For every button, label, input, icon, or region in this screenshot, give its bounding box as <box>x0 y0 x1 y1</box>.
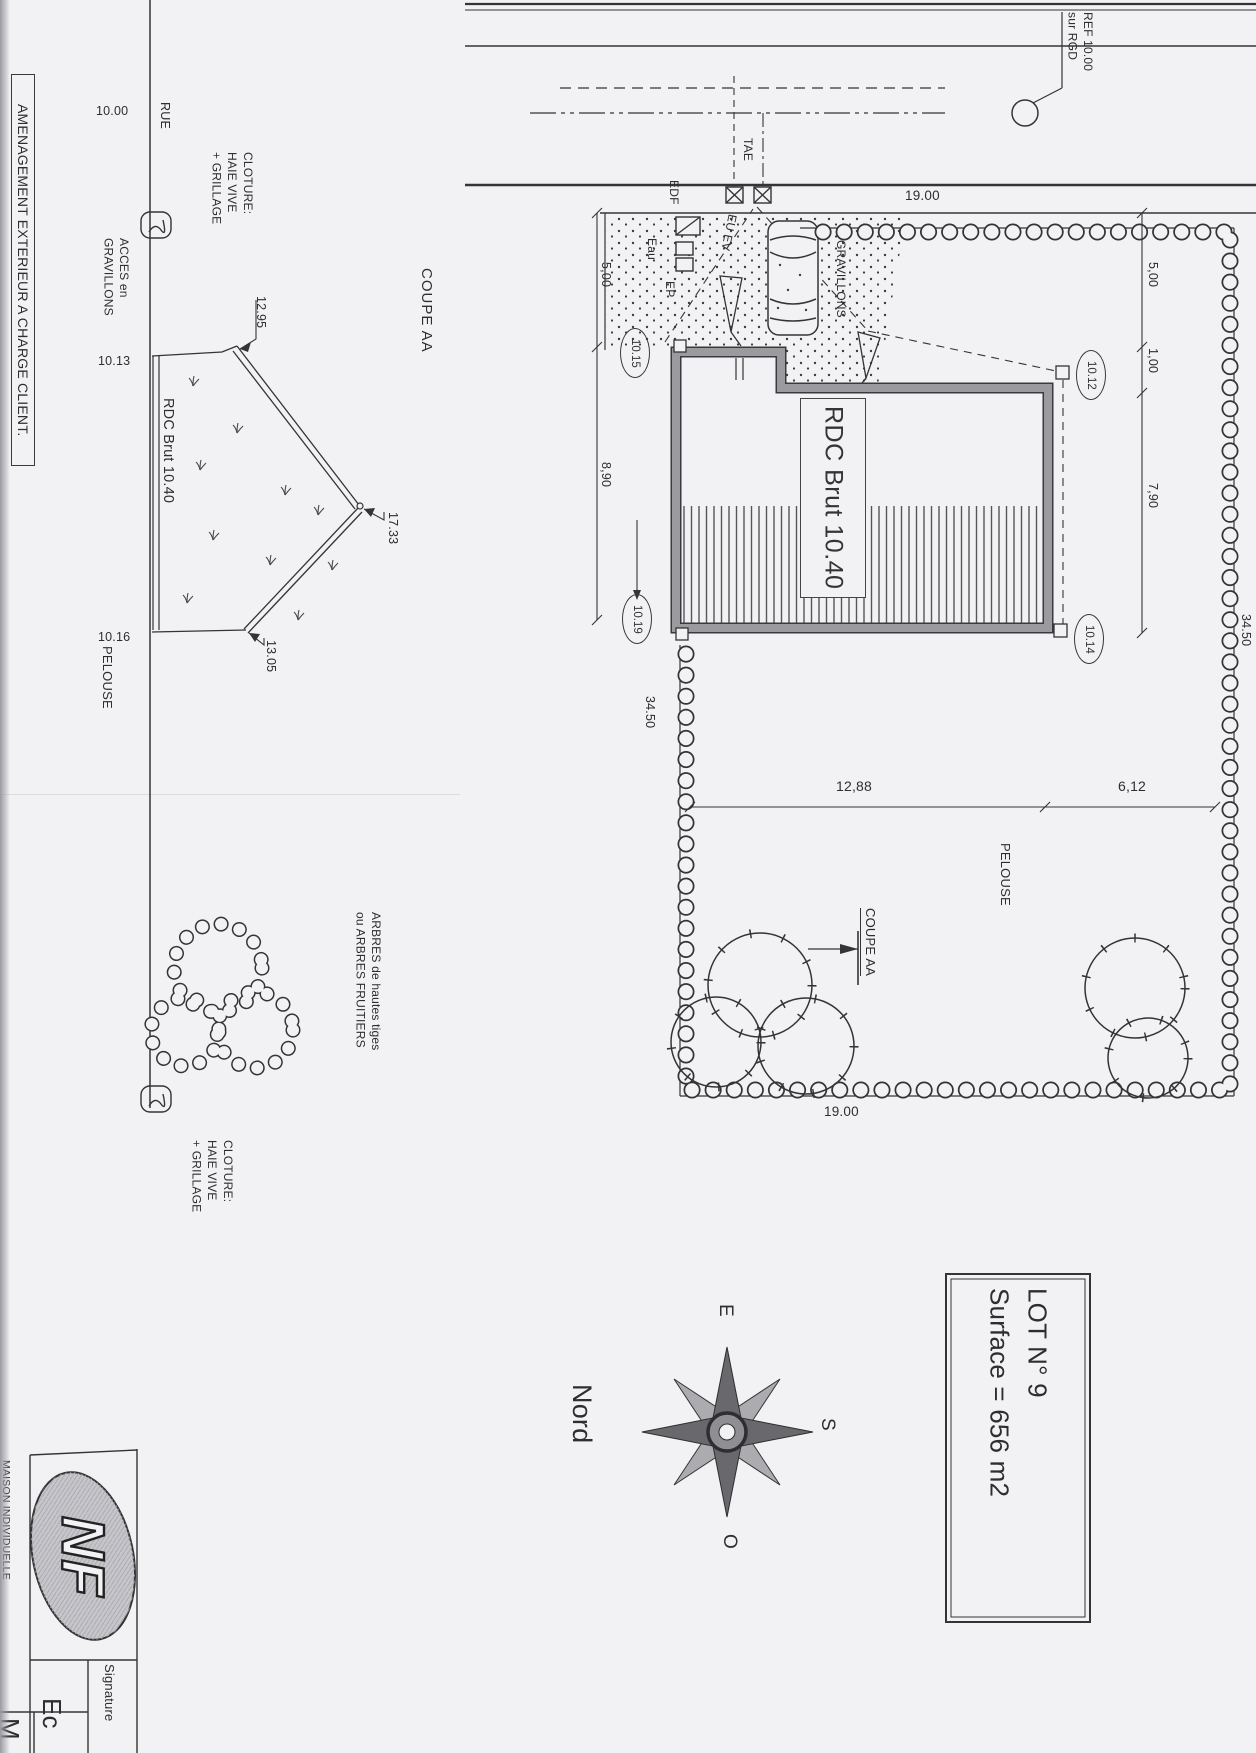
fruit-tree-symbol <box>671 933 1188 1098</box>
m-label: M <box>0 1718 25 1740</box>
trees-note: ARBRES de hautes tiges ou ARBRES FRUITIE… <box>352 912 383 1050</box>
dim-left-5-00: 5,00 <box>599 262 613 287</box>
dim-right-1-00: 1,00 <box>1146 348 1160 373</box>
street-lines <box>465 4 1256 213</box>
section-floor-label: RDC Brut 10.40 <box>160 398 176 503</box>
utility-tae: TAE <box>741 138 755 161</box>
street-ref-note: REF 10.00 sur RGD <box>1064 12 1095 71</box>
section-view <box>152 300 384 645</box>
hedge-clump-icon <box>141 212 171 1112</box>
tree-canopy-symbol <box>151 924 293 1068</box>
spot-10-19: 10.19 <box>622 594 652 644</box>
level-10-13: 10.13 <box>98 354 130 368</box>
signature-label: Signature <box>102 1664 117 1721</box>
building-floor-label: RDC Brut 10.40 <box>819 406 848 589</box>
utility-ep: EP <box>663 281 677 297</box>
plan-width-top: 19.00 <box>905 188 940 203</box>
compass-south-label: S <box>816 1418 838 1431</box>
depth-dim-right: 34.50 <box>1239 614 1253 646</box>
scanned-site-plan-sheet: NF AMENAGEMENT EXTERIEUR A CHARGE CLIENT… <box>0 0 1256 1753</box>
building-floor-label-box: RDC Brut 10.40 <box>800 398 866 598</box>
fence-note-bottom: CLOTURE: HAIE VIVE + GRILLAGE <box>188 1140 235 1212</box>
fence-note-top: CLOTURE: HAIE VIVE + GRILLAGE <box>208 152 255 224</box>
lot-info: LOT N° 9 Surface = 656 m2 <box>980 1288 1055 1497</box>
ref-leader <box>1012 12 1062 126</box>
spot-10-12: 10.12 <box>1076 350 1106 400</box>
utility-eau: Eau <box>645 238 659 260</box>
lot-number: LOT N° 9 <box>1018 1288 1056 1497</box>
garden-dim-6-12: 6,12 <box>1118 778 1146 794</box>
nf-certification-logo: NF <box>16 1462 149 1649</box>
spot-10-15: 10.15 <box>620 328 650 378</box>
compass-east-label: E <box>714 1304 736 1317</box>
lawn-label-left: PELOUSE <box>100 646 115 709</box>
car-plan-icon <box>768 221 818 335</box>
section-mark-label: COUPE AA <box>860 908 878 976</box>
compass-west-label: O <box>718 1534 740 1549</box>
section-title: COUPE AA <box>418 268 435 353</box>
ref-line1: REF 10.00 <box>1080 12 1096 71</box>
margin-note-amenagement: AMENAGEMENT EXTERIEUR A CHARGE CLIENT. <box>11 74 35 466</box>
ec-label: Ec <box>36 1698 67 1729</box>
access-note: ACCES en GRAVILLONS <box>100 238 131 316</box>
spot-10-14: 10.14 <box>1074 614 1104 664</box>
section-cut-mark <box>808 931 858 985</box>
gravel-label: GRAVILLONS <box>834 240 848 318</box>
utility-risers <box>734 76 763 187</box>
plan-width-bottom: 19.00 <box>824 1104 859 1119</box>
lot-surface: Surface = 656 m2 <box>980 1288 1018 1497</box>
svg-text:NF: NF <box>50 1516 117 1597</box>
utility-edf: EDF <box>667 180 681 205</box>
compass-rose-icon <box>642 1347 813 1517</box>
compass-north-label: Nord <box>566 1384 597 1443</box>
eave-dim-13-05: 13.05 <box>264 640 278 672</box>
lawn-label-plan: PELOUSE <box>998 843 1013 906</box>
eave-dim-12-95: 12.95 <box>254 296 268 328</box>
grass-tufts <box>183 376 338 620</box>
depth-dim-left: 34.50 <box>643 696 657 728</box>
dim-left-8-90: 8,90 <box>599 462 613 487</box>
level-10-16: 10.16 <box>98 630 130 644</box>
ref-line2: sur RGD <box>1064 12 1080 71</box>
dim-right-7-90: 7,90 <box>1146 483 1160 508</box>
garden-dim-12-88: 12,88 <box>836 778 872 794</box>
org-label: MAISON INDIVIDUELLE <box>0 1460 12 1580</box>
site-plan-drawing: NF <box>0 0 1256 1753</box>
street-width-dim: 10.00 <box>96 104 128 118</box>
street-name: RUE <box>158 102 172 129</box>
dim-right-5-00: 5,00 <box>1146 262 1160 287</box>
ridge-dim-17-33: 17.33 <box>386 512 400 544</box>
